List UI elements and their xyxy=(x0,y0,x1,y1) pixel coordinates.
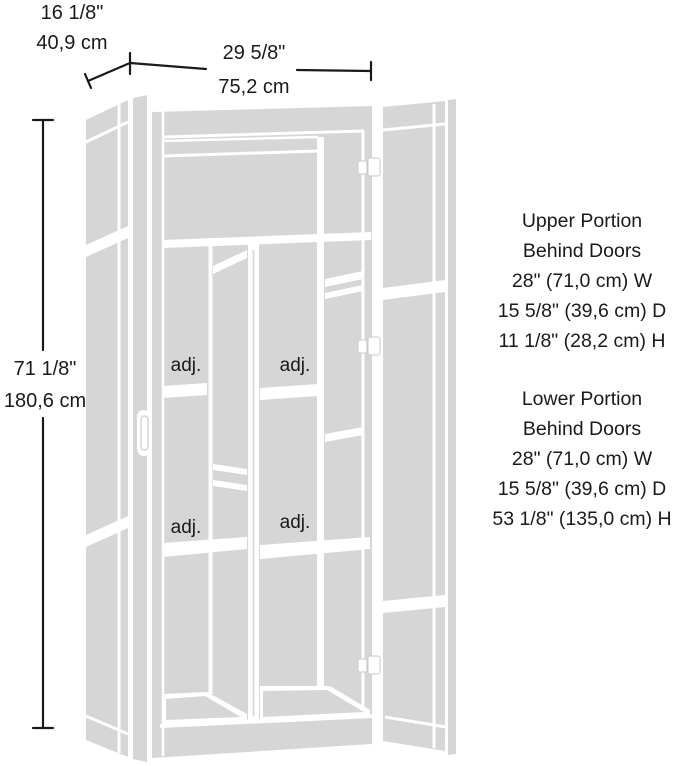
right-door xyxy=(383,99,456,755)
height-dimension-line xyxy=(33,120,53,728)
adj-shelf-label-upper-left: adj. xyxy=(160,355,212,377)
depth-dimension-line xyxy=(85,63,130,88)
cabinet-body xyxy=(152,106,373,758)
height-dimension-imperial: 71 1/8" xyxy=(0,357,90,381)
adj-shelf-label-lower-left: adj. xyxy=(160,517,212,539)
hinge-middle xyxy=(358,337,380,355)
annotation-line: Behind Doors xyxy=(476,236,679,266)
lower-portion-annotation: Lower Portion Behind Doors 28" (71,0 cm)… xyxy=(476,384,679,534)
cabinet-line-drawing xyxy=(0,0,679,766)
annotation-line: Behind Doors xyxy=(476,414,679,444)
depth-dimension-metric: 40,9 cm xyxy=(20,31,124,55)
page: 16 1/8" 40,9 cm 29 5/8" 75,2 cm 71 1/8" … xyxy=(0,0,679,766)
annotation-line: 15 5/8" (39,6 cm) D xyxy=(476,296,679,326)
width-dimension-metric: 75,2 cm xyxy=(204,75,304,99)
hinge-top xyxy=(358,158,380,176)
annotation-line: 28" (71,0 cm) W xyxy=(476,444,679,474)
annotation-line: Upper Portion xyxy=(476,206,679,236)
left-door xyxy=(86,95,151,762)
annotation-line: 53 1/8" (135,0 cm) H xyxy=(476,504,679,534)
depth-dimension-imperial: 16 1/8" xyxy=(20,1,124,25)
door-handle-notch xyxy=(137,410,151,456)
upper-portion-annotation: Upper Portion Behind Doors 28" (71,0 cm)… xyxy=(476,206,679,356)
width-dimension-imperial: 29 5/8" xyxy=(204,41,304,65)
annotation-line: 28" (71,0 cm) W xyxy=(476,266,679,296)
annotation-line: 11 1/8" (28,2 cm) H xyxy=(476,326,679,356)
hinge-bottom xyxy=(358,656,380,674)
height-dimension-metric: 180,6 cm xyxy=(0,389,90,413)
adj-shelf-label-lower-right: adj. xyxy=(269,512,321,534)
annotation-line: Lower Portion xyxy=(476,384,679,414)
annotation-line: 15 5/8" (39,6 cm) D xyxy=(476,474,679,504)
adj-shelf-label-upper-right: adj. xyxy=(269,355,321,377)
